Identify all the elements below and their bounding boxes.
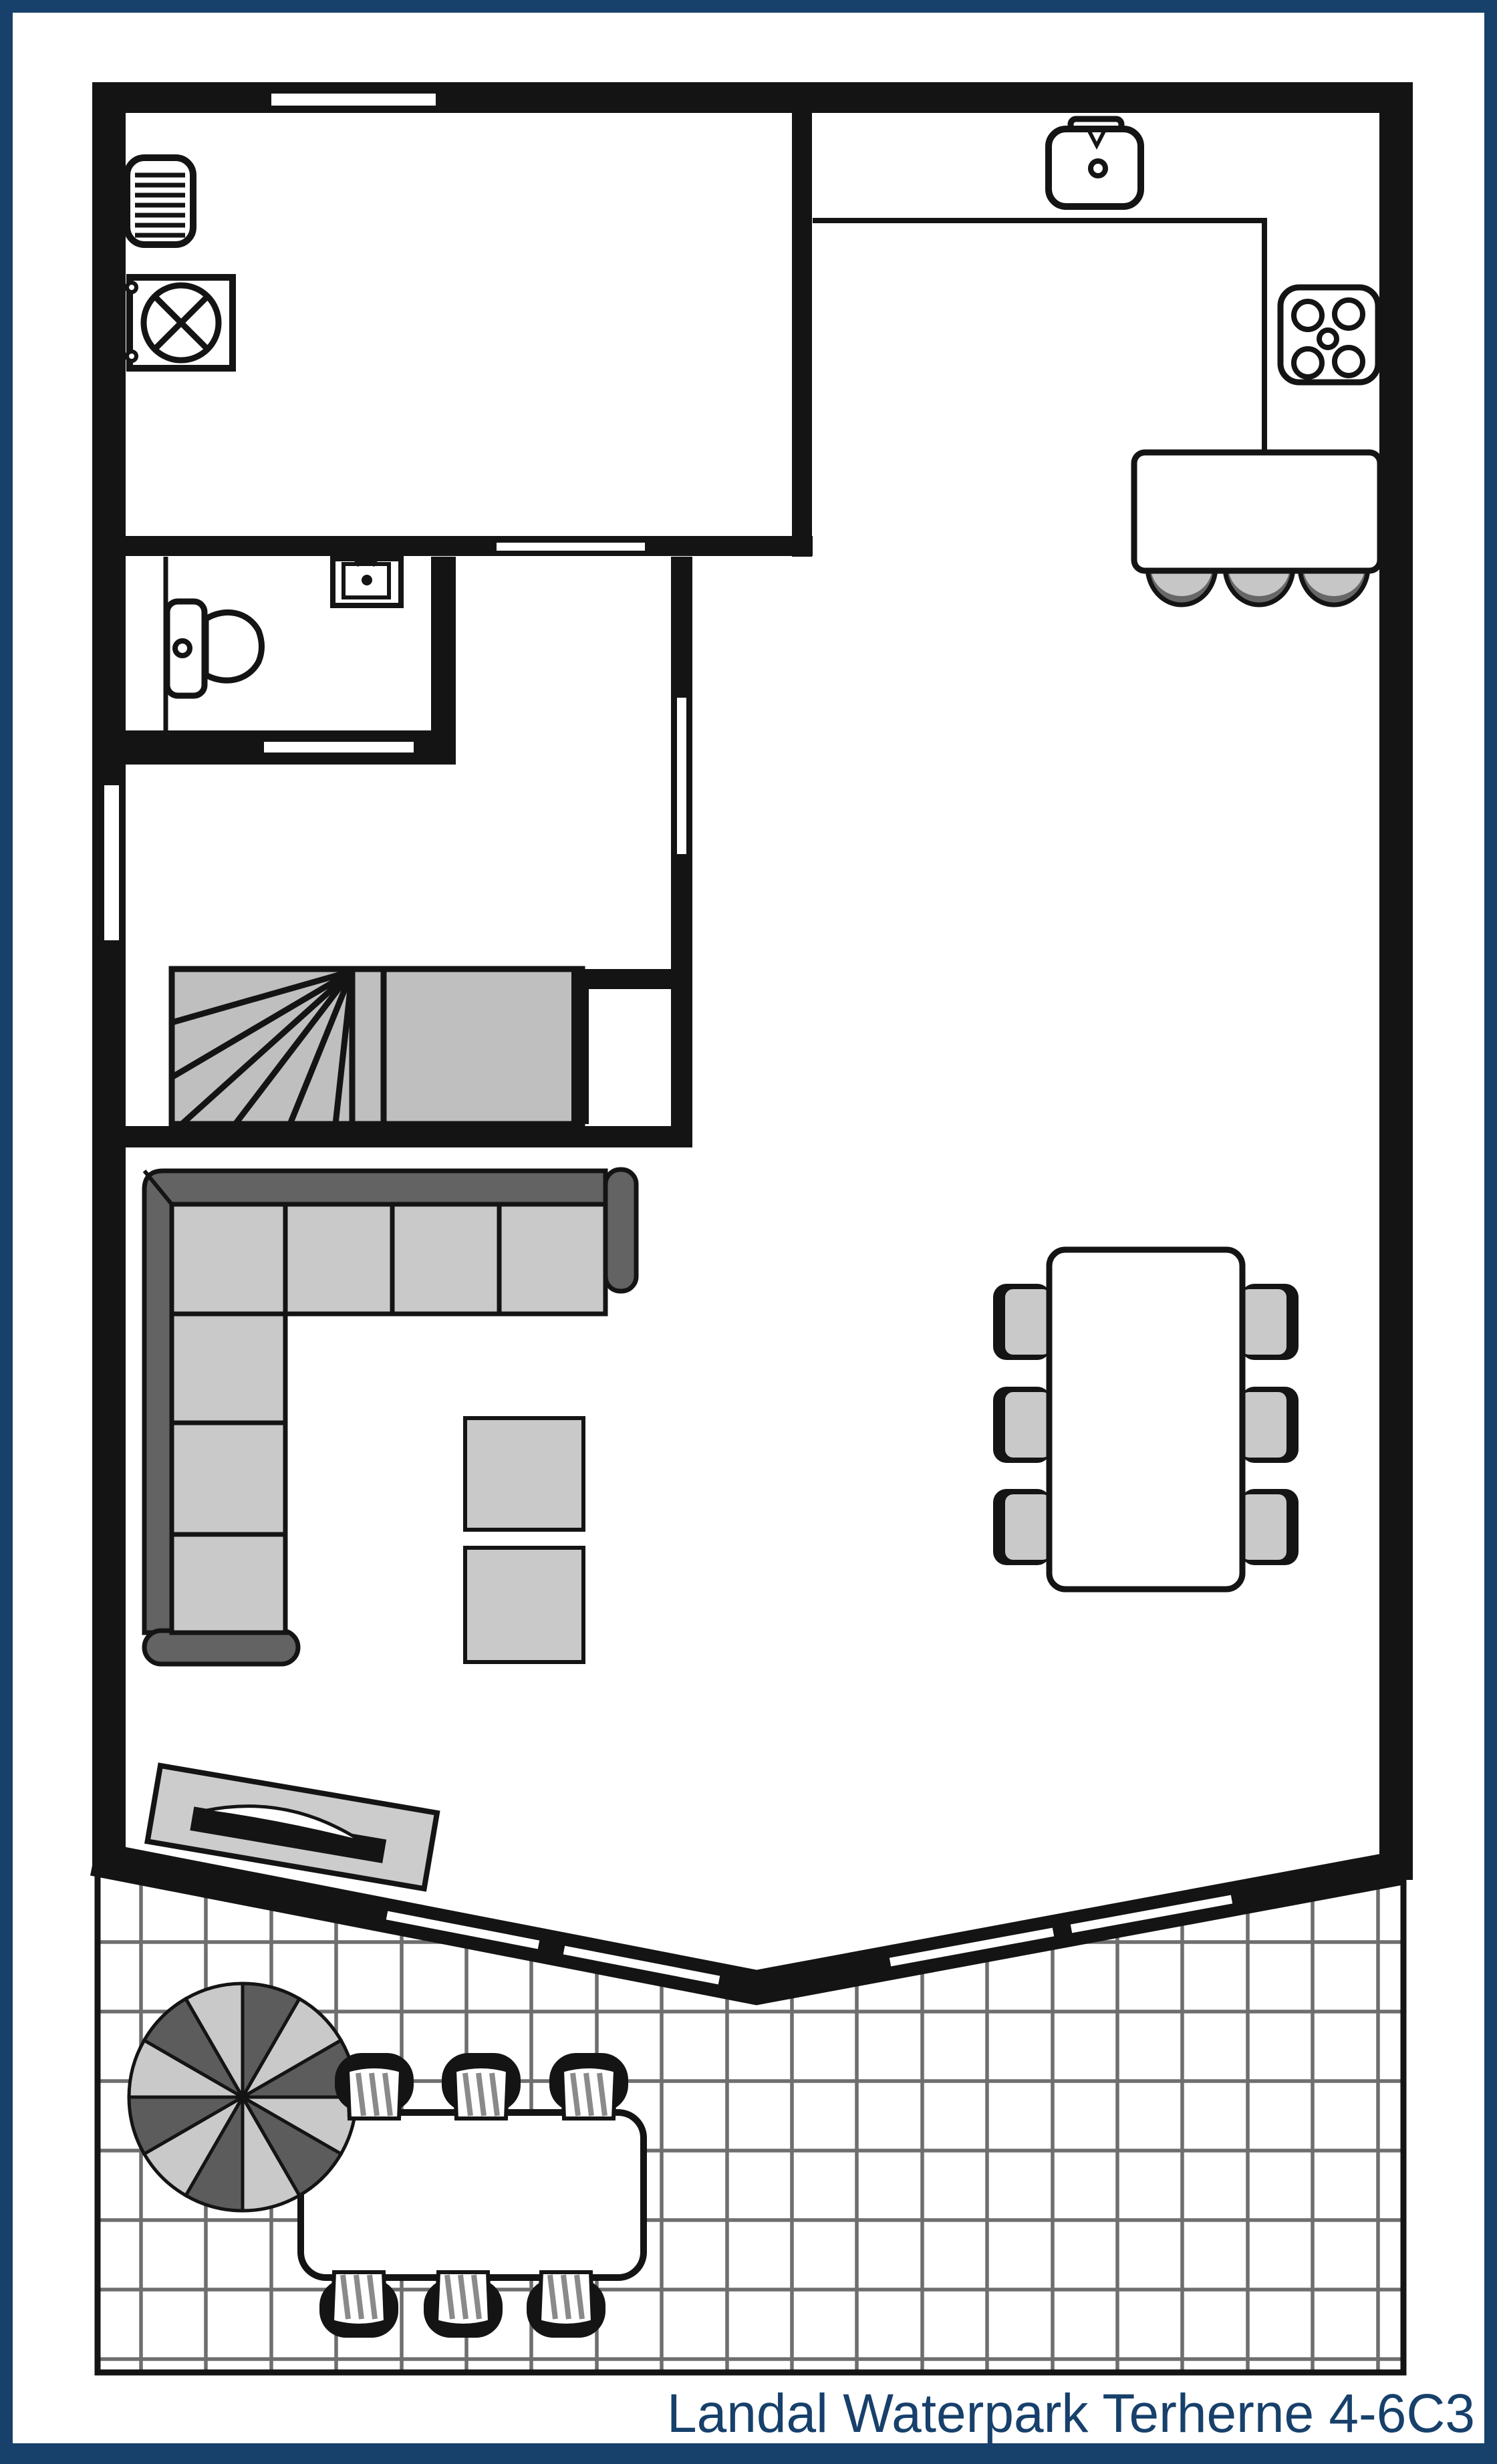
svg-text:Landal Waterpark Terherne 4-6C: Landal Waterpark Terherne 4-6C3 [667, 2383, 1475, 2444]
